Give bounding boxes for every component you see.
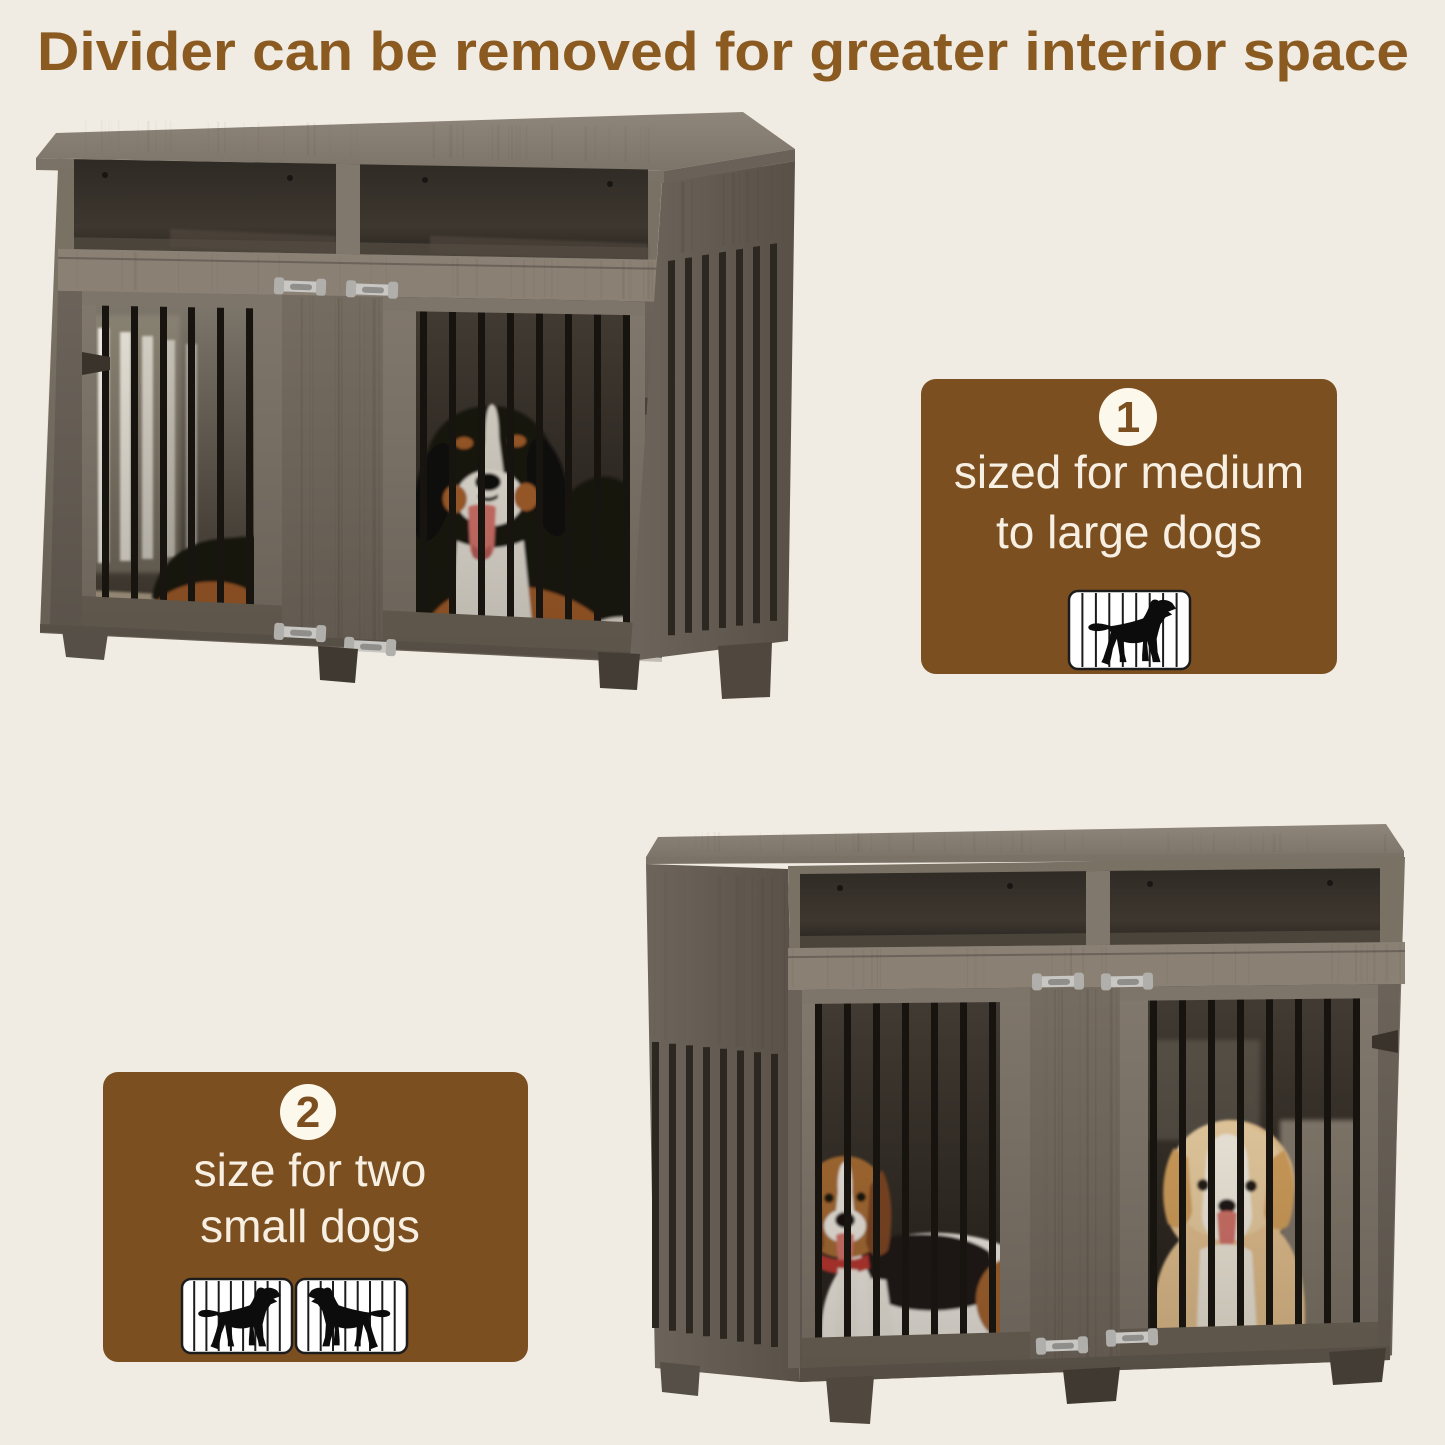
svg-text:Divider can be removed for gre: Divider can be removed for greater inter…	[37, 20, 1409, 82]
svg-text:2: 2	[296, 1088, 320, 1137]
svg-text:to large dogs: to large dogs	[996, 506, 1262, 558]
svg-text:1: 1	[1116, 393, 1140, 442]
svg-text:size for two: size for two	[194, 1144, 427, 1196]
svg-text:small dogs: small dogs	[200, 1200, 420, 1252]
svg-text:sized for medium: sized for medium	[954, 446, 1304, 498]
